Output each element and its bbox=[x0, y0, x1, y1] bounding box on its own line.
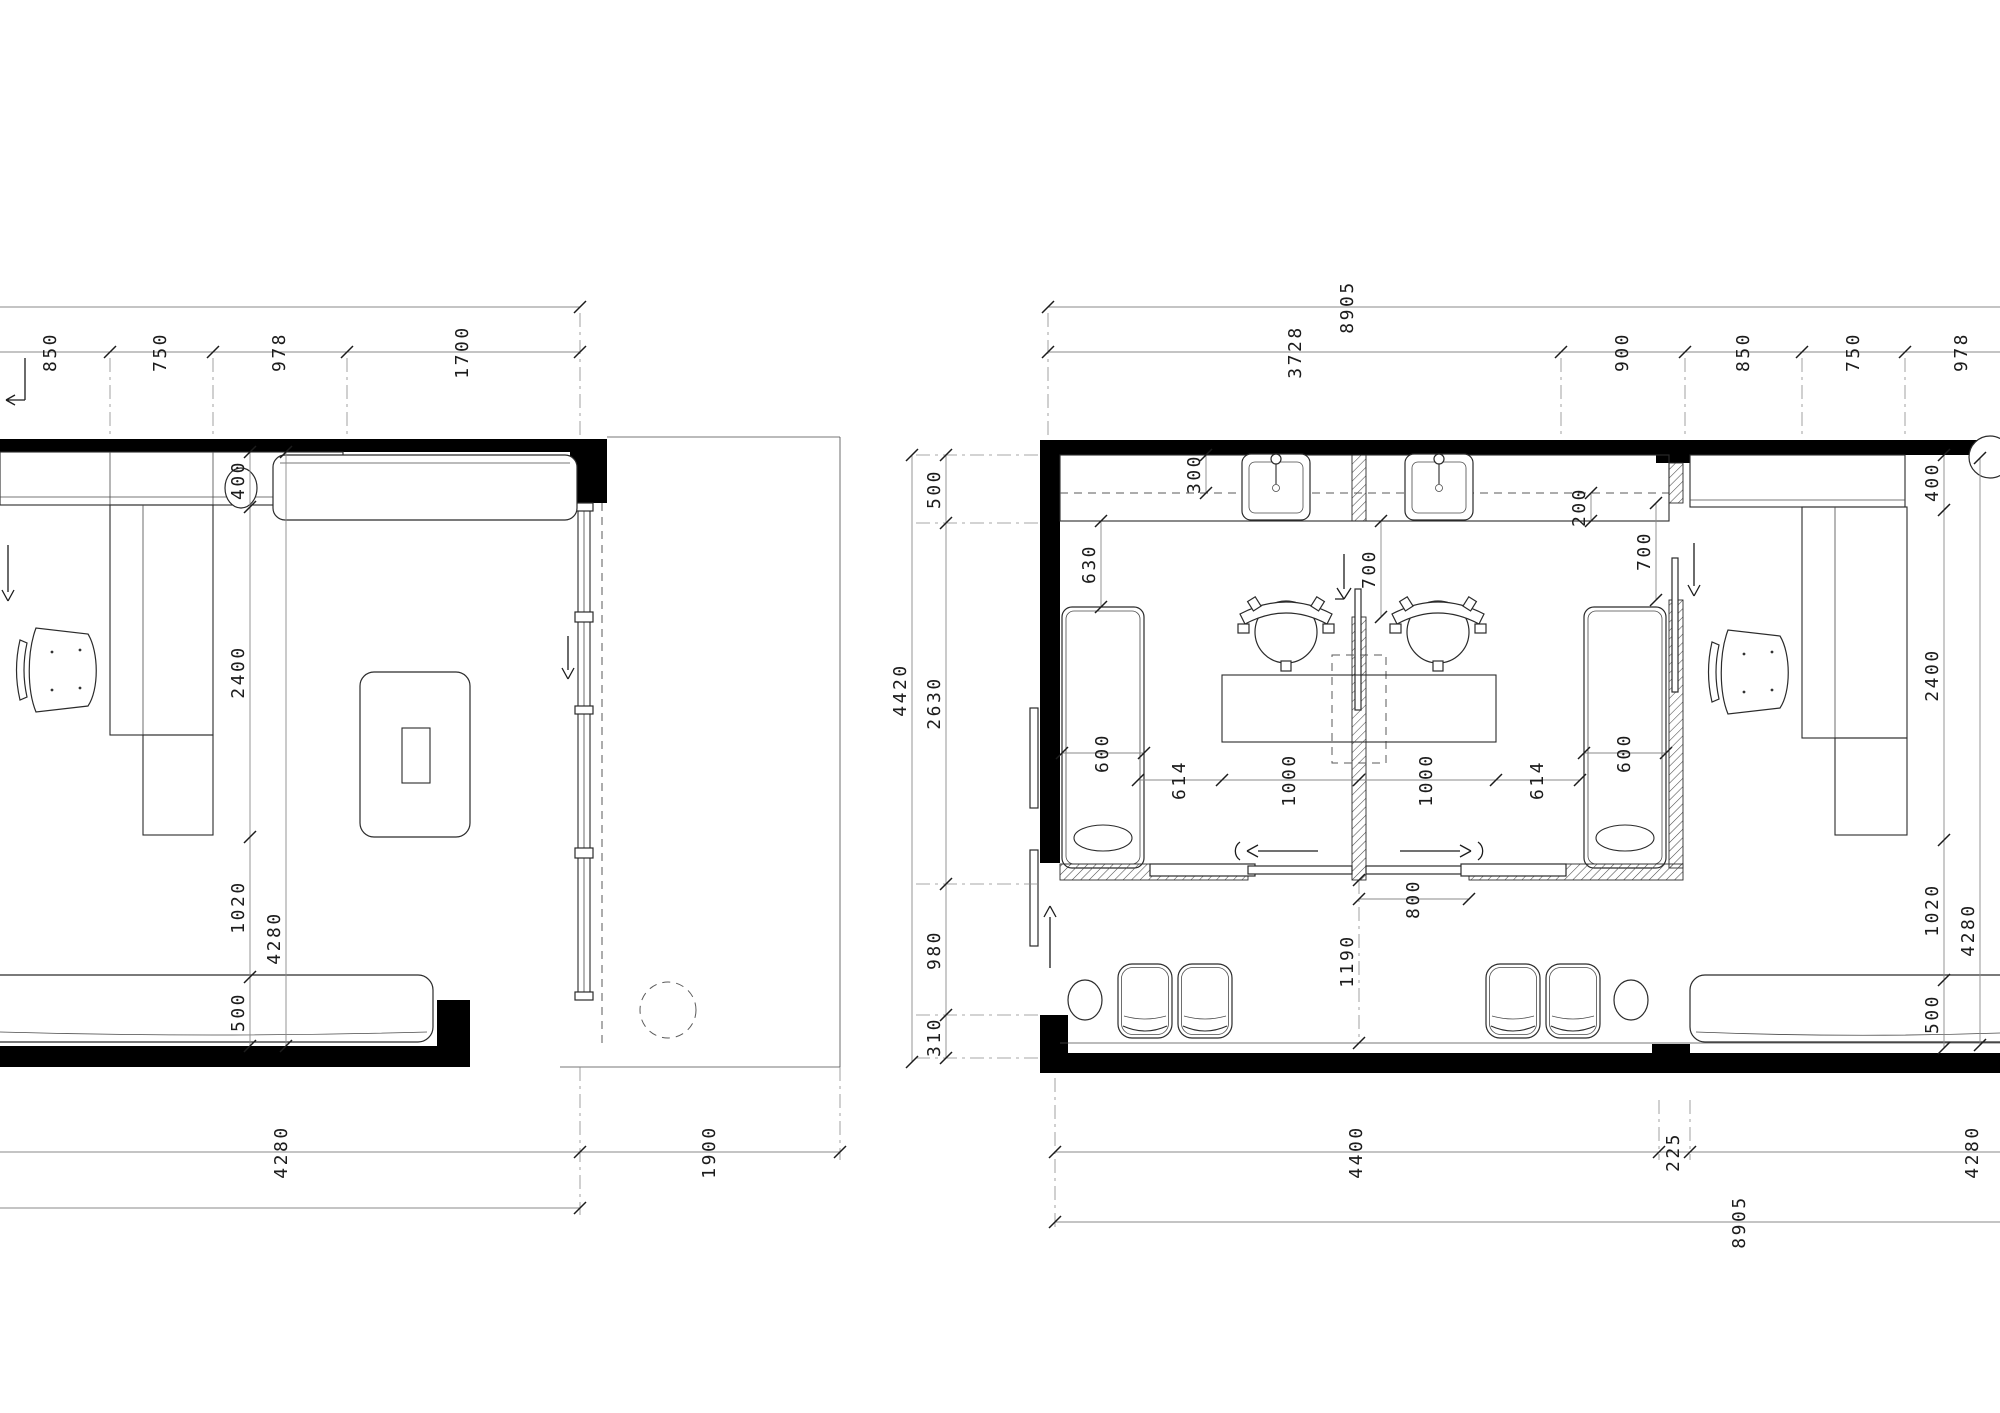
dim-label: 700 bbox=[1634, 531, 1655, 571]
dim-label: 500 bbox=[1922, 994, 1943, 1034]
console bbox=[273, 455, 577, 520]
dim-label: 4280 bbox=[1962, 1125, 1983, 1178]
office-chair bbox=[17, 628, 97, 712]
entry-arrow bbox=[1044, 906, 1056, 968]
glazed-wall bbox=[562, 503, 602, 1046]
coffee-table bbox=[360, 672, 470, 837]
dim-label: 978 bbox=[1951, 332, 1972, 372]
dim-label: 400 bbox=[228, 460, 249, 500]
bench bbox=[1690, 975, 2000, 1042]
dim-label: 1190 bbox=[1337, 934, 1358, 987]
partition-door-leaf bbox=[1672, 558, 1678, 692]
right-partition-arrow bbox=[1688, 543, 1700, 596]
dim-label: 2400 bbox=[228, 645, 249, 698]
slide-arrow-right bbox=[1400, 842, 1483, 860]
left-plan-walls bbox=[0, 439, 607, 1067]
dim-label: 850 bbox=[40, 332, 61, 372]
waiting-chair bbox=[1118, 964, 1172, 1038]
sink-right bbox=[1405, 454, 1473, 520]
dim-label: 980 bbox=[924, 930, 945, 970]
dim-label: 600 bbox=[1092, 733, 1113, 773]
dim-label: 500 bbox=[228, 992, 249, 1032]
bench bbox=[0, 975, 433, 1042]
waiting-chair bbox=[1486, 964, 1540, 1038]
dim-label: 630 bbox=[1079, 544, 1100, 584]
dim-label: 4280 bbox=[264, 911, 285, 964]
waiting-chair bbox=[1546, 964, 1600, 1038]
dashed-circle bbox=[640, 982, 696, 1038]
dim-label: 750 bbox=[1843, 332, 1864, 372]
right-room bbox=[1690, 436, 2000, 1042]
styling-chair-right bbox=[1390, 597, 1486, 671]
partition-door-arrow bbox=[1335, 554, 1351, 599]
dim-label: 2400 bbox=[1922, 648, 1943, 701]
dim-label: 614 bbox=[1527, 760, 1548, 800]
door-slide-arrow bbox=[562, 636, 574, 679]
dim-label: 1000 bbox=[1416, 753, 1437, 806]
dim-label: 700 bbox=[1359, 549, 1380, 589]
dim-label: 4280 bbox=[271, 1125, 292, 1178]
dim-label: 600 bbox=[1614, 733, 1635, 773]
partition-arrow-cut bbox=[2, 545, 14, 601]
dim-label: 1020 bbox=[1922, 883, 1943, 936]
dim-label: 900 bbox=[1612, 332, 1633, 372]
dim-label: 4420 bbox=[890, 663, 911, 716]
right-plan: 8905 3728 900 850 750 978 500 2630 980 3… bbox=[890, 280, 2000, 1248]
dim-label: 614 bbox=[1169, 760, 1190, 800]
right-partition bbox=[1669, 463, 1700, 868]
dim-label: 1700 bbox=[452, 325, 473, 378]
dim-label: 8905 bbox=[1337, 280, 1358, 333]
dim-label: 1000 bbox=[1279, 753, 1300, 806]
entry-arrow-left bbox=[6, 358, 25, 405]
waiting-chair bbox=[1178, 964, 1232, 1038]
dim-label: 750 bbox=[150, 332, 171, 372]
slide-arrow-left bbox=[1235, 842, 1318, 860]
desk bbox=[110, 505, 213, 835]
left-plan: 850 750 978 1700 400 2400 1020 500 4280 … bbox=[0, 301, 846, 1215]
dim-label: 3728 bbox=[1285, 325, 1306, 378]
partition-mirror bbox=[1355, 589, 1361, 710]
dim-label: 1020 bbox=[228, 880, 249, 933]
side-table bbox=[1068, 980, 1102, 1020]
dim-label: 225 bbox=[1663, 1132, 1684, 1172]
styling-chair-left bbox=[1238, 597, 1334, 671]
floor-plan-sheet: 850 750 978 1700 400 2400 1020 500 4280 … bbox=[0, 0, 2000, 1413]
dim-label: 300 bbox=[1184, 454, 1205, 494]
office-chair bbox=[1709, 630, 1789, 714]
dim-label: 4400 bbox=[1346, 1125, 1367, 1178]
dim-label: 1900 bbox=[699, 1125, 720, 1178]
dim-label: 400 bbox=[1922, 462, 1943, 502]
dim-label: 800 bbox=[1403, 879, 1424, 919]
dim-label: 850 bbox=[1733, 332, 1754, 372]
dim-label: 2630 bbox=[924, 676, 945, 729]
dim-label: 500 bbox=[924, 469, 945, 509]
dim-label: 8905 bbox=[1729, 1195, 1750, 1248]
dim-label: 200 bbox=[1569, 487, 1590, 527]
floor-plan-drawing: 850 750 978 1700 400 2400 1020 500 4280 … bbox=[0, 0, 2000, 1413]
sink-left bbox=[1242, 454, 1310, 520]
dim-label: 978 bbox=[269, 332, 290, 372]
side-table bbox=[1614, 980, 1648, 1020]
dim-label: 310 bbox=[924, 1017, 945, 1057]
central-partition bbox=[1332, 455, 1386, 880]
dim-label: 4280 bbox=[1958, 903, 1979, 956]
